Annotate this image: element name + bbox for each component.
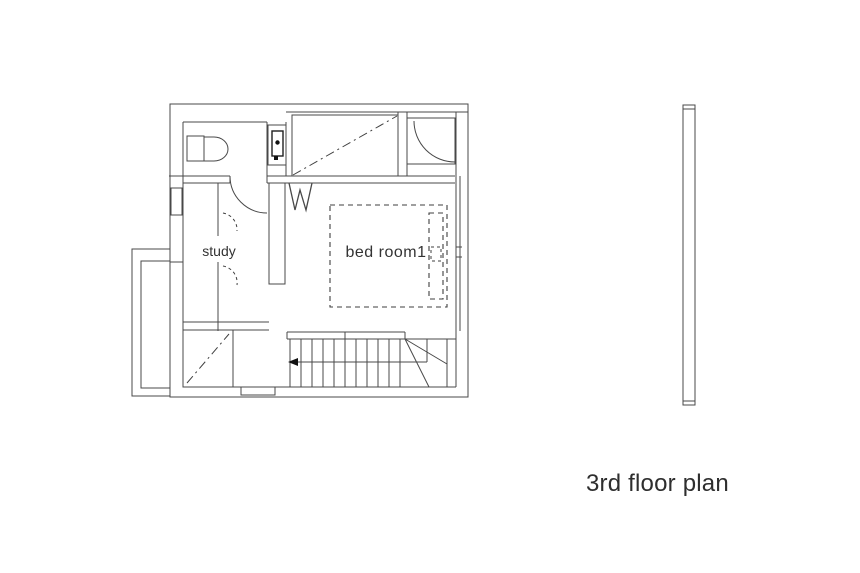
floor-plan-drawing: study bed room1 <box>0 0 860 573</box>
bedroom1: bed room1 <box>330 205 447 307</box>
stair-bottom-step <box>241 387 275 395</box>
staircase <box>241 332 456 395</box>
faucet-icon <box>275 140 279 144</box>
stair-winder-treads <box>405 339 447 387</box>
study-dashed-swing-upper <box>223 213 237 231</box>
toilet-icon <box>204 137 228 161</box>
toilet-tank <box>187 136 204 161</box>
stair-walk-line <box>296 339 427 362</box>
washbasin <box>268 125 286 165</box>
drawing-title: 3rd floor plan <box>586 470 729 498</box>
toilet-door-swing-icon <box>230 176 267 213</box>
section-bar <box>683 105 695 405</box>
drain-mark <box>274 156 278 160</box>
wall-recess <box>171 188 182 215</box>
door-room <box>407 118 455 164</box>
east-window-ticks <box>456 247 462 257</box>
toilet-room <box>187 136 267 213</box>
door-swing-icon <box>414 121 455 162</box>
void-shaft <box>183 330 233 387</box>
balcony <box>132 249 170 396</box>
closet-diagonal-mark <box>293 116 397 175</box>
stair-railing <box>287 332 456 339</box>
study-south-wall <box>183 322 269 330</box>
bedroom1-label: bed room1 <box>346 244 427 261</box>
stair-treads <box>290 339 400 387</box>
study-room: study <box>183 183 269 331</box>
bed-pillow-mark <box>431 247 441 261</box>
closet <box>292 115 398 176</box>
study-label: study <box>202 243 235 259</box>
balcony-outer <box>132 249 170 396</box>
partition-wall <box>269 183 285 284</box>
void-diagonal-mark <box>187 334 229 383</box>
w-mark-icon <box>289 183 312 210</box>
balcony-inner <box>141 261 170 388</box>
floor-plan-page: study bed room1 <box>0 0 860 573</box>
study-dashed-swing-lower <box>223 266 237 285</box>
partition <box>269 183 312 284</box>
section-marker <box>683 105 695 405</box>
